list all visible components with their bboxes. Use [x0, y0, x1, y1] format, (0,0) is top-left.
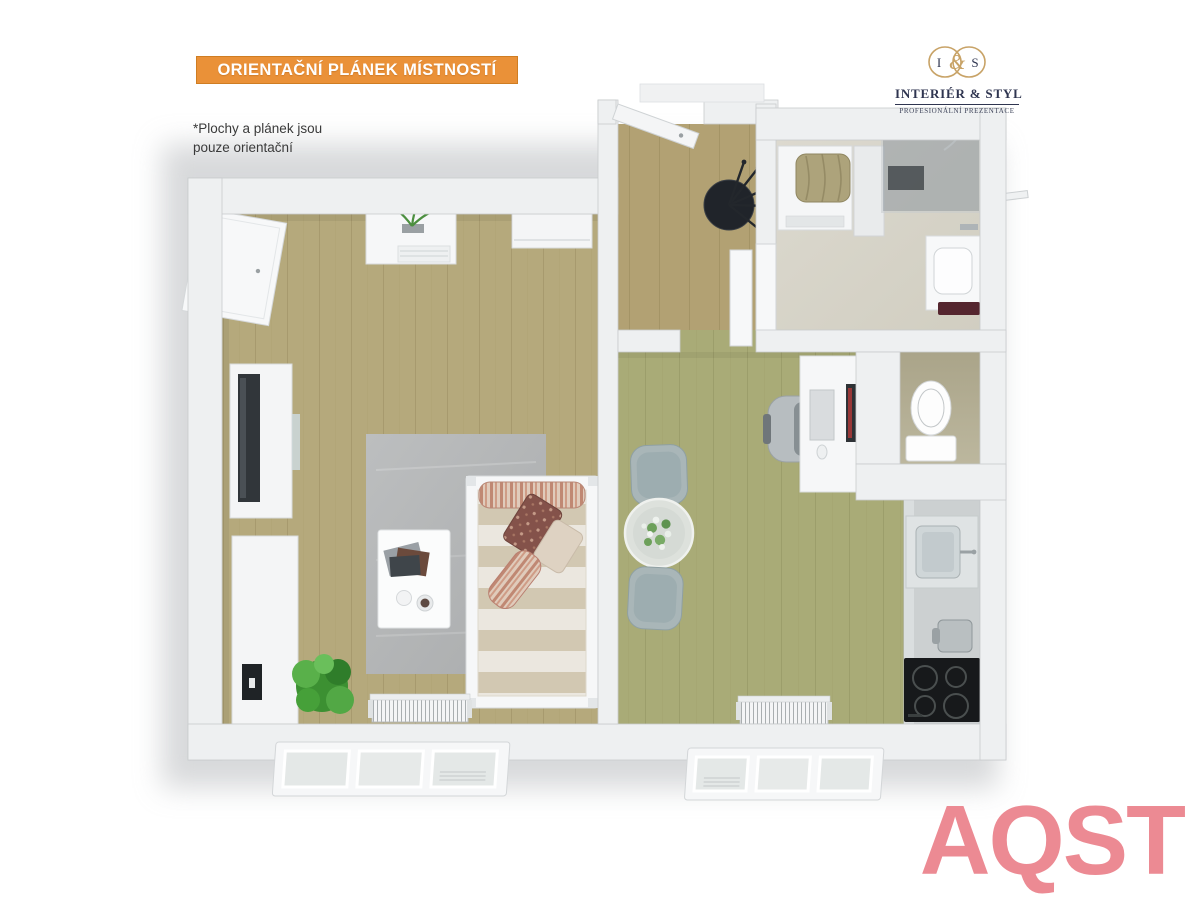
daybed: [466, 476, 598, 708]
radiator: [736, 696, 832, 724]
cooktop: [904, 658, 980, 722]
desk: [800, 356, 858, 492]
sideboard: [232, 536, 298, 724]
disclaimer-line-1: *Plochy a plánek jsou: [193, 119, 322, 138]
laundry-basket: [796, 154, 850, 202]
title-banner-label: ORIENTAČNÍ PLÁNEK MÍSTNOSTÍ: [217, 61, 496, 80]
floor-plan: [0, 0, 1200, 900]
keyboard: [810, 390, 834, 440]
kitchen-counter: [904, 500, 980, 724]
watermark: AQST: [920, 800, 1184, 880]
logo-name: INTERIÉR & STYL: [895, 86, 1019, 105]
tilt-window: [684, 748, 884, 800]
tilt-window: [272, 742, 510, 796]
washing-machine: [778, 146, 852, 230]
logo-initial-left: I: [937, 55, 941, 70]
mouse: [817, 445, 827, 459]
floor-plant: [292, 654, 354, 714]
disclaimer-note: *Plochy a plánek jsou pouze orientační: [193, 119, 322, 157]
company-logo: I & S INTERIÉR & STYL PROFESIONÁLNÍ PREZ…: [895, 42, 1019, 115]
bath-mat: [938, 302, 980, 315]
radiator: [368, 694, 472, 722]
disclaimer-line-2: pouze orientační: [193, 138, 322, 157]
kettle: [932, 620, 972, 652]
logo-monogram: I & S: [895, 42, 1019, 84]
dining-chair: [630, 444, 688, 506]
tv-cabinet: [230, 364, 300, 518]
cup: [397, 591, 412, 606]
logo-ampersand: &: [949, 50, 966, 74]
interior-door-hall: [730, 250, 752, 346]
dining-chair: [627, 566, 684, 631]
coffee-table: [378, 530, 450, 628]
glass-shelf: [292, 414, 300, 470]
bathroom-vanity: [926, 224, 980, 315]
wall-shelf: [512, 214, 592, 248]
dining-table-with-flowers: [625, 499, 693, 567]
kitchen-sink: [906, 516, 978, 588]
dryer-unit: [854, 146, 884, 236]
logo-initial-right: S: [971, 55, 978, 70]
logo-tagline: PROFESIONÁLNÍ PREZENTACE: [895, 107, 1019, 115]
title-banner: ORIENTAČNÍ PLÁNEK MÍSTNOSTÍ: [196, 56, 518, 84]
interior-door-bathroom: [756, 244, 776, 330]
